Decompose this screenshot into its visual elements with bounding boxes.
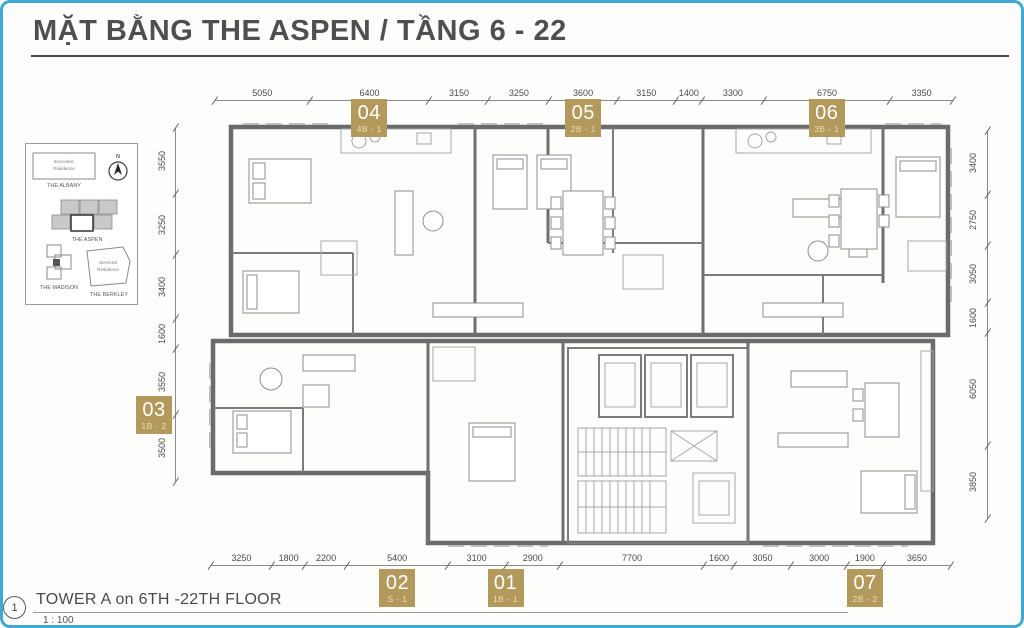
dimension-value: 5400 [387, 553, 407, 563]
unit-number: 06 [809, 103, 845, 123]
dimension-value: 1600 [157, 324, 167, 344]
dimension-segment: 1400 [676, 81, 702, 100]
drawing-title: TOWER A on 6TH -22TH FLOOR [36, 591, 282, 609]
dimension-value: 3300 [723, 88, 743, 98]
dimension-value: 1400 [679, 88, 699, 98]
dimension-value: 5050 [252, 88, 272, 98]
unit-number: 05 [565, 103, 601, 123]
unit-number: 03 [136, 400, 172, 420]
dimension-value: 3850 [968, 472, 978, 492]
dimension-segment: 2200 [305, 548, 346, 565]
dimension-segment: 1600 [704, 548, 734, 565]
dimension-segment: 3350 [890, 81, 953, 100]
unit-type: 2B - 2 [847, 595, 883, 604]
dimension-chain-bottom: 3250180022005400310029007700160030503000… [211, 548, 951, 566]
dimension-segment: 1900 [847, 548, 883, 565]
dimension-segment: 3600 [549, 81, 616, 100]
madison-label: THE MADISON [40, 285, 78, 291]
dimension-value: 3050 [752, 553, 772, 563]
dimension-value: 3500 [157, 438, 167, 458]
dimension-segment: 6750 [764, 81, 890, 100]
dimension-segment: 3400 [151, 255, 175, 319]
unit-number: 07 [847, 573, 883, 593]
dimension-segment: 1600 [961, 303, 987, 333]
dimension-segment: 1600 [151, 319, 175, 349]
unit-badge-04: 044B - 1 [351, 99, 387, 137]
dimension-segment: 3550 [151, 128, 175, 194]
unit-badge-03: 031B - 2 [136, 396, 172, 434]
dimension-value: 3550 [157, 372, 167, 392]
dimension-value: 3150 [636, 88, 656, 98]
dimension-segment: 3850 [961, 446, 987, 518]
unit-type: 1B - 1 [488, 595, 524, 604]
albany-sublabel-1: Executive [54, 159, 74, 164]
page-title: MẶT BẰNG THE ASPEN / TẦNG 6 - 22 [33, 15, 567, 48]
dimension-segment: 2750 [961, 195, 987, 246]
dimension-value: 3550 [157, 151, 167, 171]
unit-badge-01: 011B - 1 [488, 569, 524, 607]
dimension-value: 3250 [231, 553, 251, 563]
dimension-value: 3650 [907, 553, 927, 563]
dimension-value: 1900 [855, 553, 875, 563]
dimension-segment: 3150 [617, 81, 676, 100]
compass-label: N [116, 154, 120, 160]
dimension-value: 7700 [622, 553, 642, 563]
berkley-sublabel-2: Residence [97, 267, 119, 272]
dimension-segment: 5400 [347, 548, 448, 565]
dimension-segment: 3400 [961, 131, 987, 195]
callout-number-badge: 1 [3, 596, 26, 619]
albany-sublabel-2: Residence [53, 166, 75, 171]
dimension-chain-right: 340027503050160060503850 [961, 131, 988, 518]
aspen-label: THE ASPEN [72, 237, 103, 243]
elevator-core [599, 355, 733, 417]
dimension-value: 6750 [817, 88, 837, 98]
dimension-segment: 3300 [702, 81, 764, 100]
unit-badge-07: 072B - 2 [847, 569, 883, 607]
dimension-segment: 3050 [961, 246, 987, 303]
dimension-segment: 3250 [151, 194, 175, 255]
dimension-segment: 3150 [429, 81, 488, 100]
dimension-value: 1600 [709, 553, 729, 563]
dimension-segment: 3100 [448, 548, 506, 565]
unit-number: 01 [488, 573, 524, 593]
title-underline [31, 55, 1009, 57]
dimension-value: 6050 [968, 379, 978, 399]
key-plan-map: Executive Residence THE ALBANY N THE ASP… [25, 143, 138, 305]
dimension-value: 3250 [157, 215, 167, 235]
dimension-segment: 6050 [961, 333, 987, 446]
shaft-boxes [671, 431, 735, 523]
dimension-value: 1800 [279, 553, 299, 563]
dimension-segment: 3250 [211, 548, 272, 565]
unit-number: 04 [351, 103, 387, 123]
dimension-segment: 6400 [310, 81, 430, 100]
berkley-label: THE BERKLEY [90, 292, 128, 298]
dimension-segment: 5050 [215, 81, 310, 100]
dimension-chain-top: 5050640031503250360031501400330067503350 [215, 81, 953, 101]
unit-badge-02: 02S - 1 [379, 569, 415, 607]
unit-type: 4B - 1 [351, 125, 387, 134]
unit-number: 02 [379, 573, 415, 593]
dimension-value: 3600 [573, 88, 593, 98]
dimension-segment: 2900 [506, 548, 560, 565]
drawing-scale: 1 : 100 [43, 615, 74, 626]
dimension-segment: 1800 [272, 548, 306, 565]
dimension-value: 3100 [467, 553, 487, 563]
dimension-value: 6400 [360, 88, 380, 98]
dimension-value: 3000 [809, 553, 829, 563]
dimension-value: 3350 [912, 88, 932, 98]
dimension-segment: 3250 [488, 81, 549, 100]
dimension-value: 1600 [968, 308, 978, 328]
albany-label: THE ALBANY [47, 183, 81, 189]
dimension-value: 2750 [968, 210, 978, 230]
unit-badge-05: 052B - 1 [565, 99, 601, 137]
dimension-value: 2200 [316, 553, 336, 563]
unit-type: 3B - 1 [809, 125, 845, 134]
unit-type: 1B - 2 [136, 422, 172, 431]
stairs [578, 428, 666, 533]
unit-type: 2B - 1 [565, 125, 601, 134]
dimension-value: 3150 [449, 88, 469, 98]
floor-plan-drawing [198, 108, 963, 558]
unit-badge-06: 063B - 1 [809, 99, 845, 137]
dimension-value: 3250 [509, 88, 529, 98]
dimension-value: 3400 [157, 277, 167, 297]
dimension-segment: 3000 [791, 548, 847, 565]
dimension-value: 3400 [968, 153, 978, 173]
unit-type: S - 1 [379, 595, 415, 604]
footer-underline [33, 612, 848, 613]
dimension-segment: 3050 [734, 548, 791, 565]
dimension-segment: 3650 [883, 548, 951, 565]
callout-number: 1 [11, 602, 17, 614]
berkley-sublabel-1: Serviced [99, 260, 117, 265]
floor-plan-sheet: MẶT BẰNG THE ASPEN / TẦNG 6 - 22 Executi… [0, 0, 1024, 628]
dimension-segment: 7700 [560, 548, 704, 565]
dimension-value: 3050 [968, 264, 978, 284]
dimension-value: 2900 [523, 553, 543, 563]
